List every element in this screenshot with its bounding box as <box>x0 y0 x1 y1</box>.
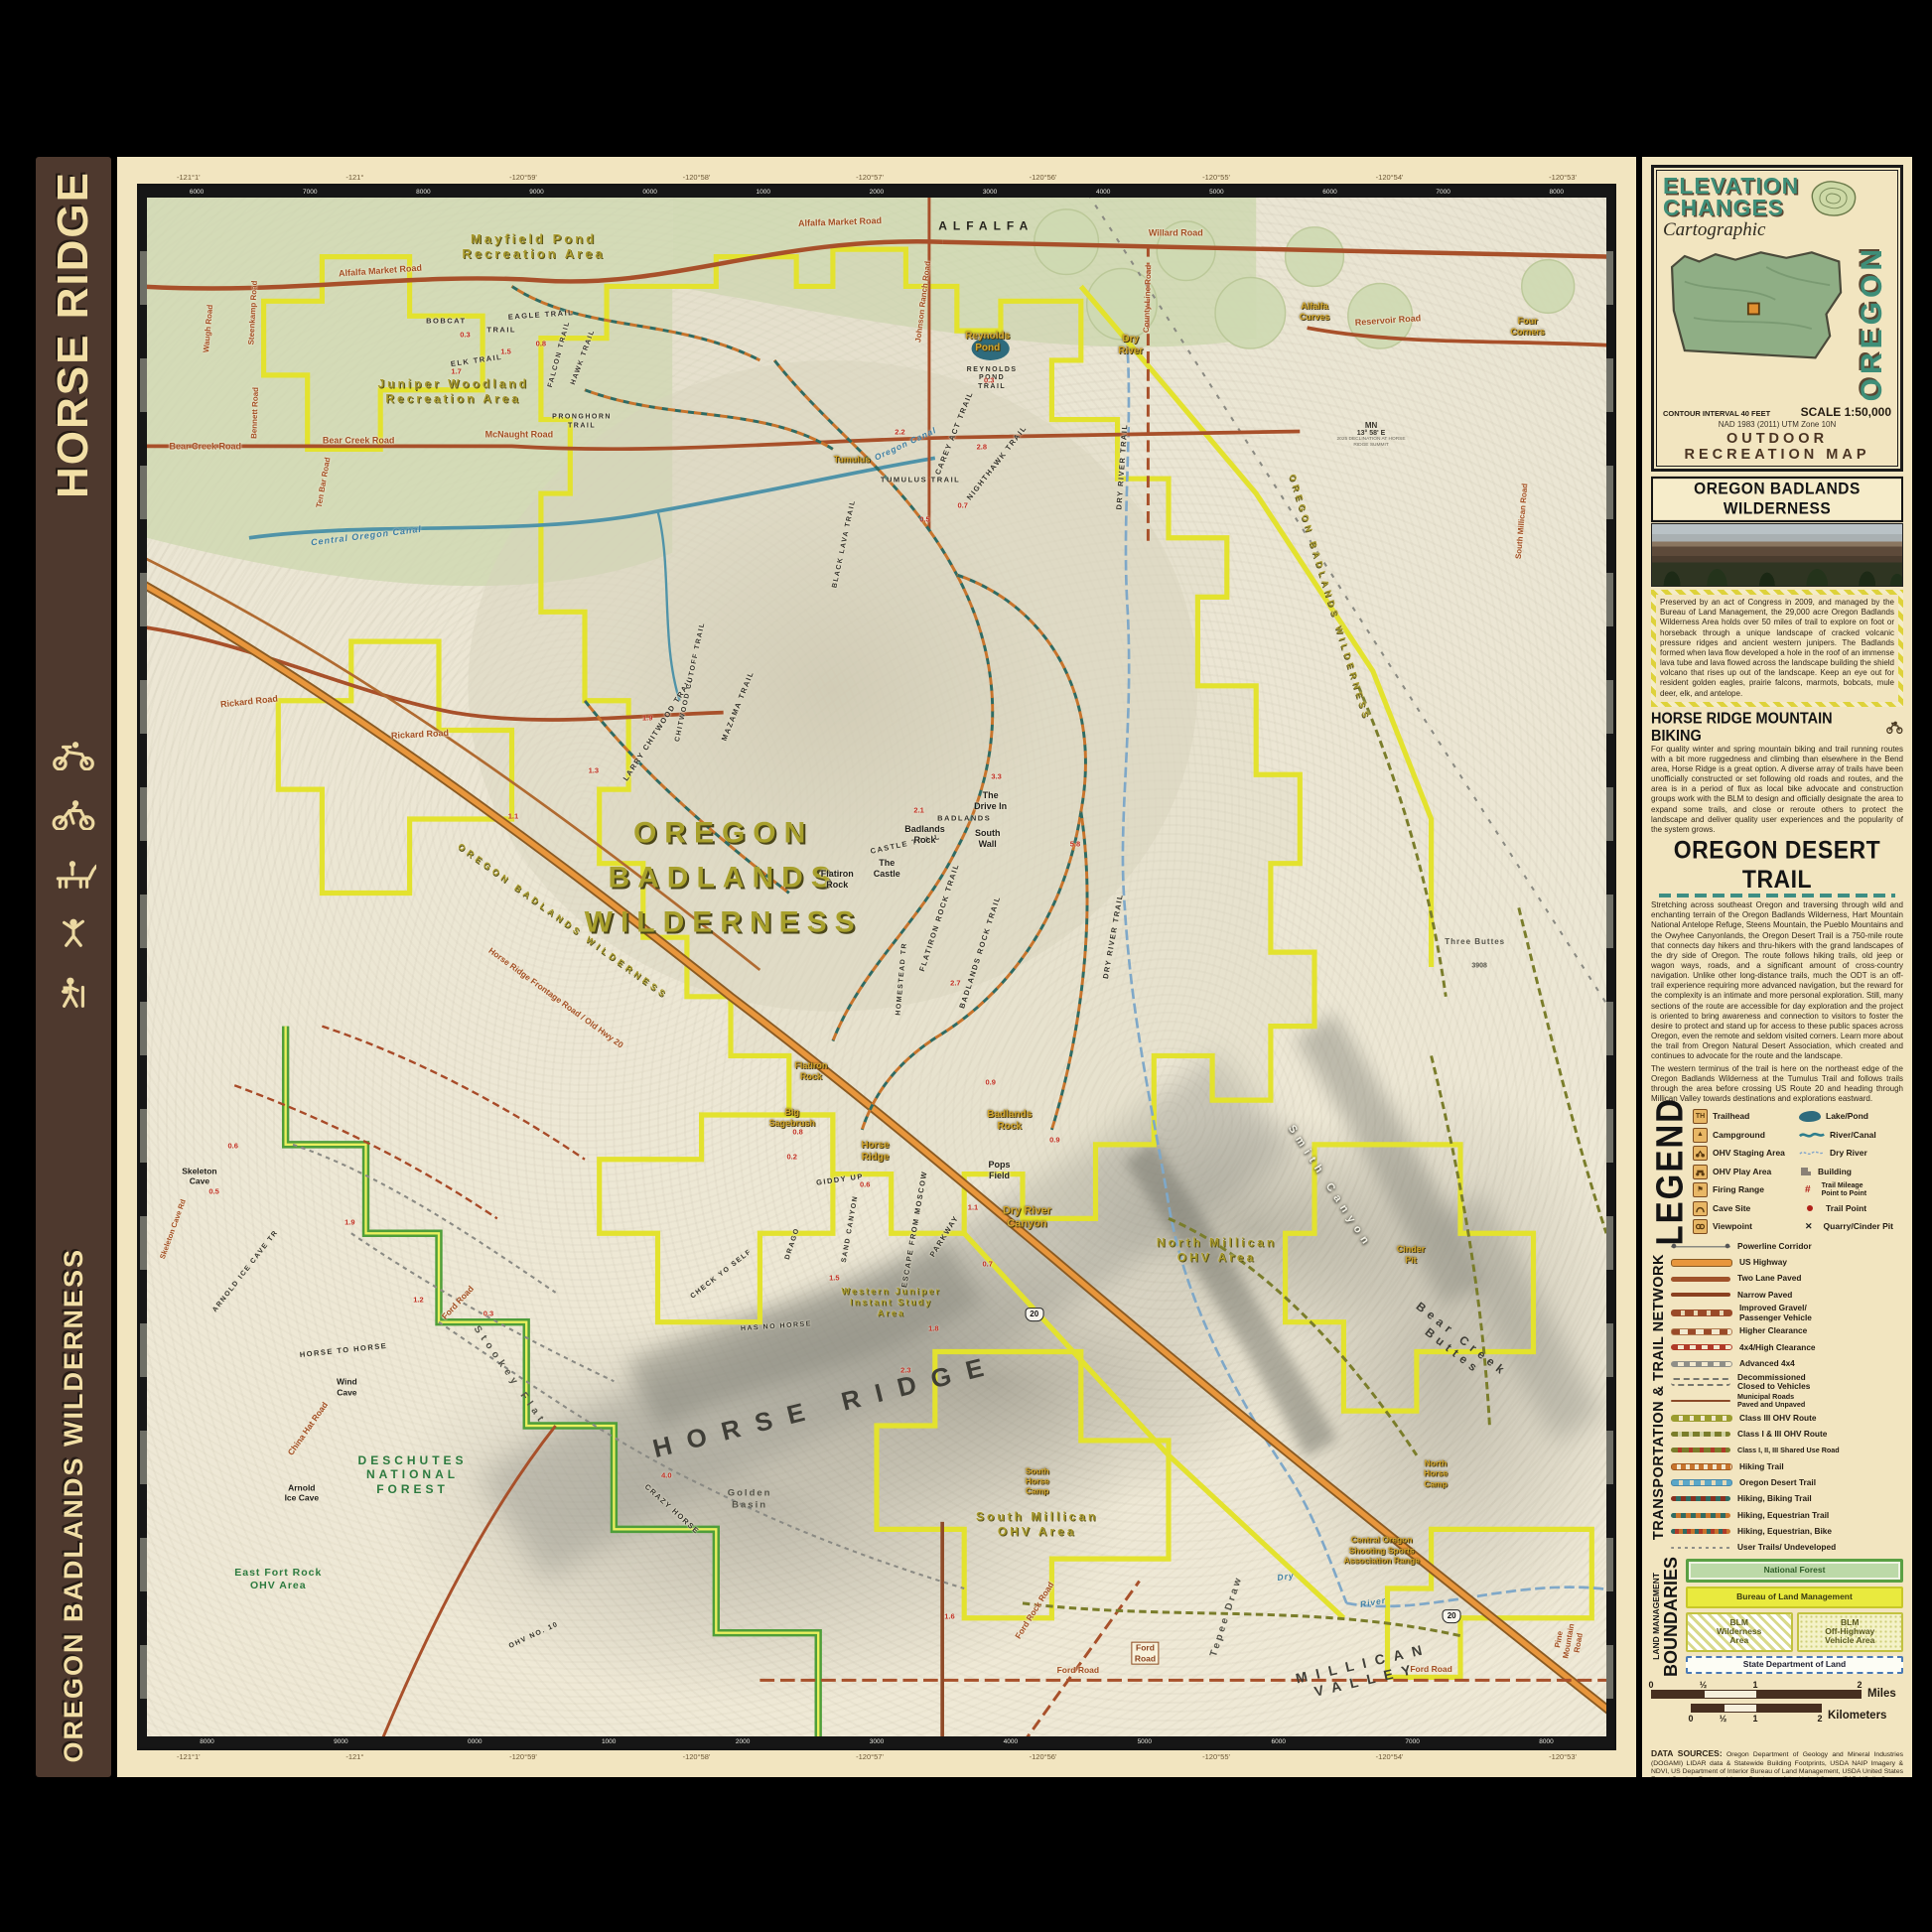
trail-mileage-label: 0.3 <box>460 330 470 339</box>
blm-wilderness-swatch: BLM Wilderness Area <box>1686 1612 1793 1652</box>
horseback-icon <box>51 857 96 891</box>
improved-gravel-line-sample <box>1671 1310 1732 1316</box>
legend-item: River/Canal <box>1799 1127 1903 1144</box>
utm-grid-ruler-left <box>140 198 147 1736</box>
grid-number: 4000 <box>1096 189 1110 196</box>
scale-tick: 0 <box>1648 1680 1653 1690</box>
transport-legend-item: Oregon Desert Trail <box>1671 1475 1903 1490</box>
class-iii-line-sample <box>1671 1415 1732 1422</box>
trail-mileage-label: 2.8 <box>977 443 987 452</box>
left-title-sidebar: HORSE RIDGE OREGON BADLANDS WILDERNESS <box>36 157 111 1777</box>
legend-item: ✕Quarry/Cinder Pit <box>1799 1218 1903 1235</box>
trail-mileage-label: 0.8 <box>536 340 546 348</box>
trail-mileage-label: 1.1 <box>968 1202 978 1211</box>
legend-item-label: OHV Staging Area <box>1713 1149 1785 1158</box>
motorcycle-icon <box>51 738 96 771</box>
boundaries-section: LAND MANAGEMENT BOUNDARIES National Fore… <box>1651 1559 1903 1674</box>
transport-legend-item: Hiking, Equestrian, Bike <box>1671 1524 1903 1539</box>
legend-item: OHV Play Area <box>1693 1164 1797 1180</box>
grid-number: 4000 <box>1004 1738 1018 1745</box>
scale-tick: ½ <box>1720 1714 1727 1724</box>
wilderness-description: Preserved by an act of Congress in 2009,… <box>1651 590 1903 707</box>
national-forest-swatch: National Forest <box>1686 1559 1903 1583</box>
transport-legend-item: User Trails/ Undeveloped <box>1671 1541 1903 1556</box>
transport-legend-item: Higher Clearance <box>1671 1324 1903 1339</box>
trail-mileage-label: 1.6 <box>944 1612 954 1621</box>
grid-number: 1000 <box>602 1738 616 1745</box>
longitude-label: -120°54' <box>1376 173 1404 182</box>
trail-mileage-icon: # <box>1805 1184 1811 1195</box>
legend-item: OHV Staging Area <box>1693 1145 1797 1162</box>
transport-section: TRANSPORTATION & TRAIL NETWORK Powerline… <box>1651 1239 1903 1555</box>
grid-number: 7000 <box>1436 189 1449 196</box>
grid-number: 7000 <box>303 189 317 196</box>
map-title-vertical: HORSE RIDGE <box>49 171 98 498</box>
hiking-line-sample <box>1671 1463 1732 1470</box>
transport-item-label: Higher Clearance <box>1739 1326 1807 1335</box>
longitude-label: -120°55' <box>1202 1752 1230 1761</box>
grid-number: 2000 <box>736 1738 750 1745</box>
legend-title: LEGEND <box>1648 1097 1692 1246</box>
transport-item-label: Two Lane Paved <box>1737 1274 1801 1283</box>
grid-number: 2000 <box>870 189 884 196</box>
class-i-iii-line-sample <box>1671 1432 1730 1437</box>
trail-mileage-label: 1.9 <box>345 1218 354 1227</box>
legend-item-label: Campground <box>1713 1131 1765 1140</box>
map-scale: SCALE 1:50,000 <box>1801 405 1891 419</box>
legend-item-label: River/Canal <box>1830 1131 1876 1140</box>
declination-diagram: MN 13° 58' E 2025 DECLINATION AT HORSE R… <box>1336 421 1406 449</box>
grid-number: 7000 <box>1405 1738 1419 1745</box>
hiker-icon <box>51 976 96 1010</box>
legend-item: Viewpoint <box>1693 1218 1797 1235</box>
trail-mileage-label: 0.3 <box>984 376 994 385</box>
longitude-label: -120°56' <box>1030 173 1057 182</box>
lake-pond-icon <box>1799 1111 1821 1122</box>
blm-ohv-swatch: BLM Off-Highway Vehicle Area <box>1797 1612 1904 1652</box>
biking-description: For quality winter and spring mountain b… <box>1651 745 1903 835</box>
legend-item: THTrailhead <box>1693 1108 1797 1125</box>
grid-number: 3000 <box>983 189 997 196</box>
publisher-name: ELEVATION CHANGES Cartographic <box>1663 176 1799 239</box>
trail-mileage-label: 0.7 <box>983 1260 993 1269</box>
legend-item-label: Trailhead <box>1713 1112 1749 1121</box>
trail-mileage-label: 2.2 <box>895 427 904 436</box>
transport-item-label: Hiking Trail <box>1739 1462 1784 1471</box>
longitude-label: -120°59' <box>509 173 537 182</box>
legend-item: Trail Point <box>1799 1200 1903 1217</box>
longitude-label: -120°53' <box>1549 173 1577 182</box>
transport-legend-item: Decommissioned Closed to Vehicles <box>1671 1373 1903 1392</box>
grid-number: 8000 <box>416 189 430 196</box>
magnetic-north-label: MN <box>1336 421 1406 430</box>
higher-clearance-line-sample <box>1671 1328 1732 1335</box>
transport-item-label: Hiking, Biking Trail <box>1737 1494 1812 1503</box>
longitude-label: -121°1' <box>177 173 201 182</box>
transport-legend-item: Powerline Corridor <box>1671 1239 1903 1254</box>
narrow-paved-line-sample <box>1671 1293 1730 1297</box>
map-subtitle-vertical: OREGON BADLANDS WILDERNESS <box>59 1248 89 1763</box>
data-sources: DATA SOURCES: Oregon Department of Geolo… <box>1651 1748 1903 1777</box>
map-frame: 6000700080009000000010002000300040005000… <box>137 184 1616 1750</box>
advanced-4x4-line-sample <box>1671 1361 1732 1367</box>
trail-mileage-label: 0.2 <box>787 1152 797 1161</box>
longitude-label: -121°1' <box>177 1752 201 1761</box>
scale-tick: ½ <box>1700 1680 1708 1690</box>
longitude-label: -120°58' <box>683 173 711 182</box>
longitude-label: -120°57' <box>856 1752 884 1761</box>
transport-item-label: Powerline Corridor <box>1737 1242 1812 1251</box>
transport-item-label: Improved Gravel/ Passenger Vehicle <box>1739 1304 1812 1322</box>
wilderness-section-title: OREGON BADLANDS WILDERNESS <box>1651 477 1903 522</box>
campground-icon: ▲ <box>1693 1128 1708 1143</box>
grid-number: 0000 <box>642 189 656 196</box>
grid-number: 8000 <box>1550 189 1564 196</box>
legend-item-label: Quarry/Cinder Pit <box>1824 1222 1893 1231</box>
trail-mileage-label: 3.3 <box>991 771 1001 780</box>
transport-item-label: Municipal Roads Paved and Unpaved <box>1737 1393 1805 1409</box>
grid-number: 6000 <box>1271 1738 1285 1745</box>
map-poster-layout: HORSE RIDGE OREGON BADLANDS WILDERNESS -… <box>36 157 1912 1777</box>
municipal-line-sample <box>1671 1400 1730 1402</box>
legend-section: LEGEND THTrailhead▲CampgroundOHV Staging… <box>1651 1108 1903 1235</box>
legend-item-label: Trail Point <box>1826 1204 1866 1213</box>
trail-mileage-label: 0.6 <box>228 1141 238 1150</box>
transport-legend-item: 4x4/High Clearance <box>1671 1340 1903 1355</box>
publisher-logo-box: ELEVATION CHANGES Cartographic OREGON <box>1651 165 1903 472</box>
trail-mileage-label: 1.1 <box>508 812 518 821</box>
quarry-icon: ✕ <box>1805 1222 1813 1232</box>
transport-item-label: 4x4/High Clearance <box>1739 1343 1816 1352</box>
legend-item: ⚑Firing Range <box>1693 1181 1797 1198</box>
legend-item: Dry River <box>1799 1145 1903 1162</box>
utm-grid-ruler-bottom: 8000900000001000200030004000500060007000… <box>140 1736 1613 1747</box>
grid-number: 8000 <box>200 1738 213 1745</box>
longitude-label: -121° <box>345 173 363 182</box>
grid-number: 3000 <box>870 1738 884 1745</box>
legend-item-label: Firing Range <box>1713 1185 1764 1194</box>
longitude-label: -120°54' <box>1376 1752 1404 1761</box>
activity-icons <box>51 738 96 1010</box>
transport-item-label: Oregon Desert Trail <box>1739 1478 1816 1487</box>
class-i-ii-iii-line-sample <box>1671 1448 1730 1452</box>
transport-legend-item: Advanced 4x4 <box>1671 1356 1903 1371</box>
trail-mileage-label: 1.8 <box>928 1324 938 1333</box>
transport-legend-item: Hiking Trail <box>1671 1459 1903 1474</box>
mountain-bike-icon <box>1886 721 1903 734</box>
grid-number: 1000 <box>757 189 770 196</box>
scale-tick: 1 <box>1752 1680 1757 1690</box>
trail-mileage-label: 1.2 <box>413 1295 423 1304</box>
user-trails-line-sample <box>1671 1547 1730 1550</box>
trail-mileage-label: 1.7 <box>451 367 461 376</box>
miles-scalebar <box>1651 1690 1862 1699</box>
oregon-state-map <box>1663 245 1852 372</box>
odt-section-title: OREGON DESERT TRAIL <box>1651 835 1903 894</box>
hiking-equestrian-line-sample <box>1671 1513 1730 1518</box>
longitude-labels-bottom: -121°1'-121°-120°59'-120°58'-120°57'-120… <box>137 1750 1616 1763</box>
legend-item: ▲Campground <box>1693 1127 1797 1144</box>
legend-item-label: Lake/Pond <box>1826 1112 1868 1121</box>
grid-number: 9000 <box>334 1738 347 1745</box>
trail-mileage-label: 0.8 <box>792 1127 802 1136</box>
two-lane-line-sample <box>1671 1277 1730 1282</box>
topo-blob-icon <box>1805 176 1861 219</box>
grid-number: 6000 <box>1322 189 1336 196</box>
transport-item-label: Class III OHV Route <box>1739 1414 1816 1423</box>
wilderness-photo <box>1651 523 1903 587</box>
trailhead-icon: TH <box>1693 1109 1708 1124</box>
bicycle-icon <box>51 797 96 831</box>
hiking-biking-line-sample <box>1671 1496 1730 1501</box>
legend-item: #Trail Mileage Point to Point <box>1799 1181 1903 1198</box>
longitude-label: -120°57' <box>856 173 884 182</box>
trail-mileage-label: 2.1 <box>913 805 923 814</box>
trail-mileage-label: 5.8 <box>1070 840 1080 849</box>
legend-item: Lake/Pond <box>1799 1108 1903 1125</box>
trail-mileage-label: 0.3 <box>483 1309 493 1317</box>
trail-mileage-label: 0.5 <box>919 514 929 523</box>
state-land-swatch: State Department of Land <box>1686 1656 1903 1675</box>
longitude-label: -120°53' <box>1549 1752 1577 1761</box>
transport-item-label: Hiking, Equestrian Trail <box>1737 1511 1829 1520</box>
contour-interval: CONTOUR INTERVAL 40 FEET <box>1663 409 1770 418</box>
legend-item-label: Trail Mileage Point to Point <box>1822 1182 1867 1197</box>
utm-grid-ruler-top: 6000700080009000000010002000300040005000… <box>140 187 1613 198</box>
transport-legend-item: Class I, II, III Shared Use Road <box>1671 1444 1903 1458</box>
scale-tick: 2 <box>1857 1680 1862 1690</box>
trail-mileage-label: 0.7 <box>958 501 968 510</box>
trail-point-icon <box>1807 1205 1813 1211</box>
transport-item-label: Class I & III OHV Route <box>1737 1430 1827 1439</box>
decommissioned-line-sample <box>1671 1378 1730 1386</box>
biking-section-title: HORSE RIDGE MOUNTAIN BIKING <box>1651 710 1903 745</box>
trail-mileage-label: 4.0 <box>661 1470 671 1479</box>
utm-grid-ruler-right <box>1606 198 1613 1736</box>
legend-item-label: Dry River <box>1830 1149 1867 1158</box>
odt-description-1: Stretching across southeast Oregon and t… <box>1651 900 1903 1062</box>
info-panel: ELEVATION CHANGES Cartographic OREGON <box>1642 157 1912 1777</box>
transport-legend-item: Hiking, Biking Trail <box>1671 1492 1903 1507</box>
legend-item-label: OHV Play Area <box>1713 1168 1771 1176</box>
grid-number: 9000 <box>529 189 543 196</box>
longitude-label: -121° <box>345 1752 363 1761</box>
building-icon <box>1799 1166 1813 1177</box>
legend-item-label: Building <box>1818 1168 1852 1176</box>
trail-mileage-label: 0.5 <box>208 1187 218 1196</box>
odt-line-sample <box>1671 1479 1732 1486</box>
grid-number: 8000 <box>1539 1738 1553 1745</box>
trail-mileage-label: 2.3 <box>900 1366 910 1375</box>
scale-tick: 0 <box>1688 1714 1693 1724</box>
trail-mileage-label: 0.9 <box>1049 1135 1059 1144</box>
map-datum: NAD 1983 (2011) UTM Zone 10N <box>1663 420 1891 429</box>
trail-mileage-label: 0.6 <box>860 1179 870 1188</box>
transport-legend-item: Narrow Paved <box>1671 1288 1903 1303</box>
trail-mileage-label: 1.5 <box>829 1274 839 1283</box>
transport-item-label: Advanced 4x4 <box>1739 1359 1795 1368</box>
dry-river-icon <box>1799 1149 1825 1158</box>
transport-legend-item: Improved Gravel/ Passenger Vehicle <box>1671 1304 1903 1322</box>
longitude-labels-top: -121°1'-121°-120°59'-120°58'-120°57'-120… <box>137 171 1616 184</box>
longitude-label: -120°56' <box>1030 1752 1057 1761</box>
legend-item: Building <box>1799 1164 1903 1180</box>
transport-legend-item: US Highway <box>1671 1256 1903 1271</box>
high-clearance-4x4-line-sample <box>1671 1344 1732 1350</box>
transport-item-label: Hiking, Equestrian, Bike <box>1737 1527 1832 1536</box>
transport-legend-item: Hiking, Equestrian Trail <box>1671 1508 1903 1523</box>
transport-title: TRANSPORTATION & TRAIL NETWORK <box>1651 1254 1667 1540</box>
ohv-staging-icon <box>1693 1146 1708 1161</box>
hiking-equestrian-bike-line-sample <box>1671 1529 1730 1534</box>
transport-item-label: Narrow Paved <box>1737 1291 1792 1300</box>
trail-mileage-label: 1.3 <box>589 765 599 774</box>
transport-legend-item: Class III OHV Route <box>1671 1411 1903 1426</box>
kilometers-scalebar <box>1691 1704 1822 1713</box>
ohv-play-icon <box>1693 1165 1708 1179</box>
topographic-map: -121°1'-121°-120°59'-120°58'-120°57'-120… <box>117 157 1636 1777</box>
cave-site-icon <box>1693 1201 1708 1216</box>
blm-swatch: Bureau of Land Management <box>1686 1587 1903 1608</box>
longitude-label: -120°59' <box>509 1752 537 1761</box>
grid-number: 0000 <box>468 1738 482 1745</box>
scale-tick: 2 <box>1817 1714 1822 1724</box>
grid-number: 5000 <box>1138 1738 1152 1745</box>
map-canvas: Mayfield Pond Recreation AreaJuniper Woo… <box>147 198 1606 1736</box>
trail-mileage-label: 0.9 <box>985 1078 995 1087</box>
transport-item-label: Class I, II, III Shared Use Road <box>1737 1447 1840 1454</box>
grid-number: 6000 <box>190 189 204 196</box>
firing-range-icon: ⚑ <box>1693 1182 1708 1197</box>
legend-item: Cave Site <box>1693 1200 1797 1217</box>
legend-item-label: Cave Site <box>1713 1204 1750 1213</box>
scale-tick: 1 <box>1752 1714 1757 1724</box>
trail-mileage-label: 1.5 <box>500 347 510 356</box>
river-canal-icon <box>1799 1131 1825 1140</box>
scale-bars: 0½12 Miles Kilometers 0½12 <box>1651 1680 1903 1743</box>
transport-item-label: User Trails/ Undeveloped <box>1737 1543 1836 1552</box>
longitude-label: -120°58' <box>683 1752 711 1761</box>
oregon-label: OREGON <box>1856 245 1889 401</box>
transport-legend-item: Two Lane Paved <box>1671 1272 1903 1287</box>
map-location-marker <box>1748 303 1759 314</box>
climber-icon <box>51 916 96 950</box>
grid-number: 5000 <box>1209 189 1223 196</box>
transport-item-label: Decommissioned Closed to Vehicles <box>1737 1373 1810 1392</box>
trail-mileage-label: 2.7 <box>950 978 960 987</box>
legend-item-label: Viewpoint <box>1713 1222 1752 1231</box>
us-highway-line-sample <box>1671 1259 1732 1267</box>
trail-mileage-label: 1.9 <box>642 713 652 722</box>
longitude-label: -120°55' <box>1202 173 1230 182</box>
transport-item-label: US Highway <box>1739 1258 1787 1267</box>
map-type-label: OUTDOOR RECREATION MAP <box>1663 431 1891 463</box>
transport-legend-item: Municipal Roads Paved and Unpaved <box>1671 1393 1903 1409</box>
transport-legend-item: Class I & III OHV Route <box>1671 1427 1903 1442</box>
viewpoint-icon <box>1693 1219 1708 1234</box>
